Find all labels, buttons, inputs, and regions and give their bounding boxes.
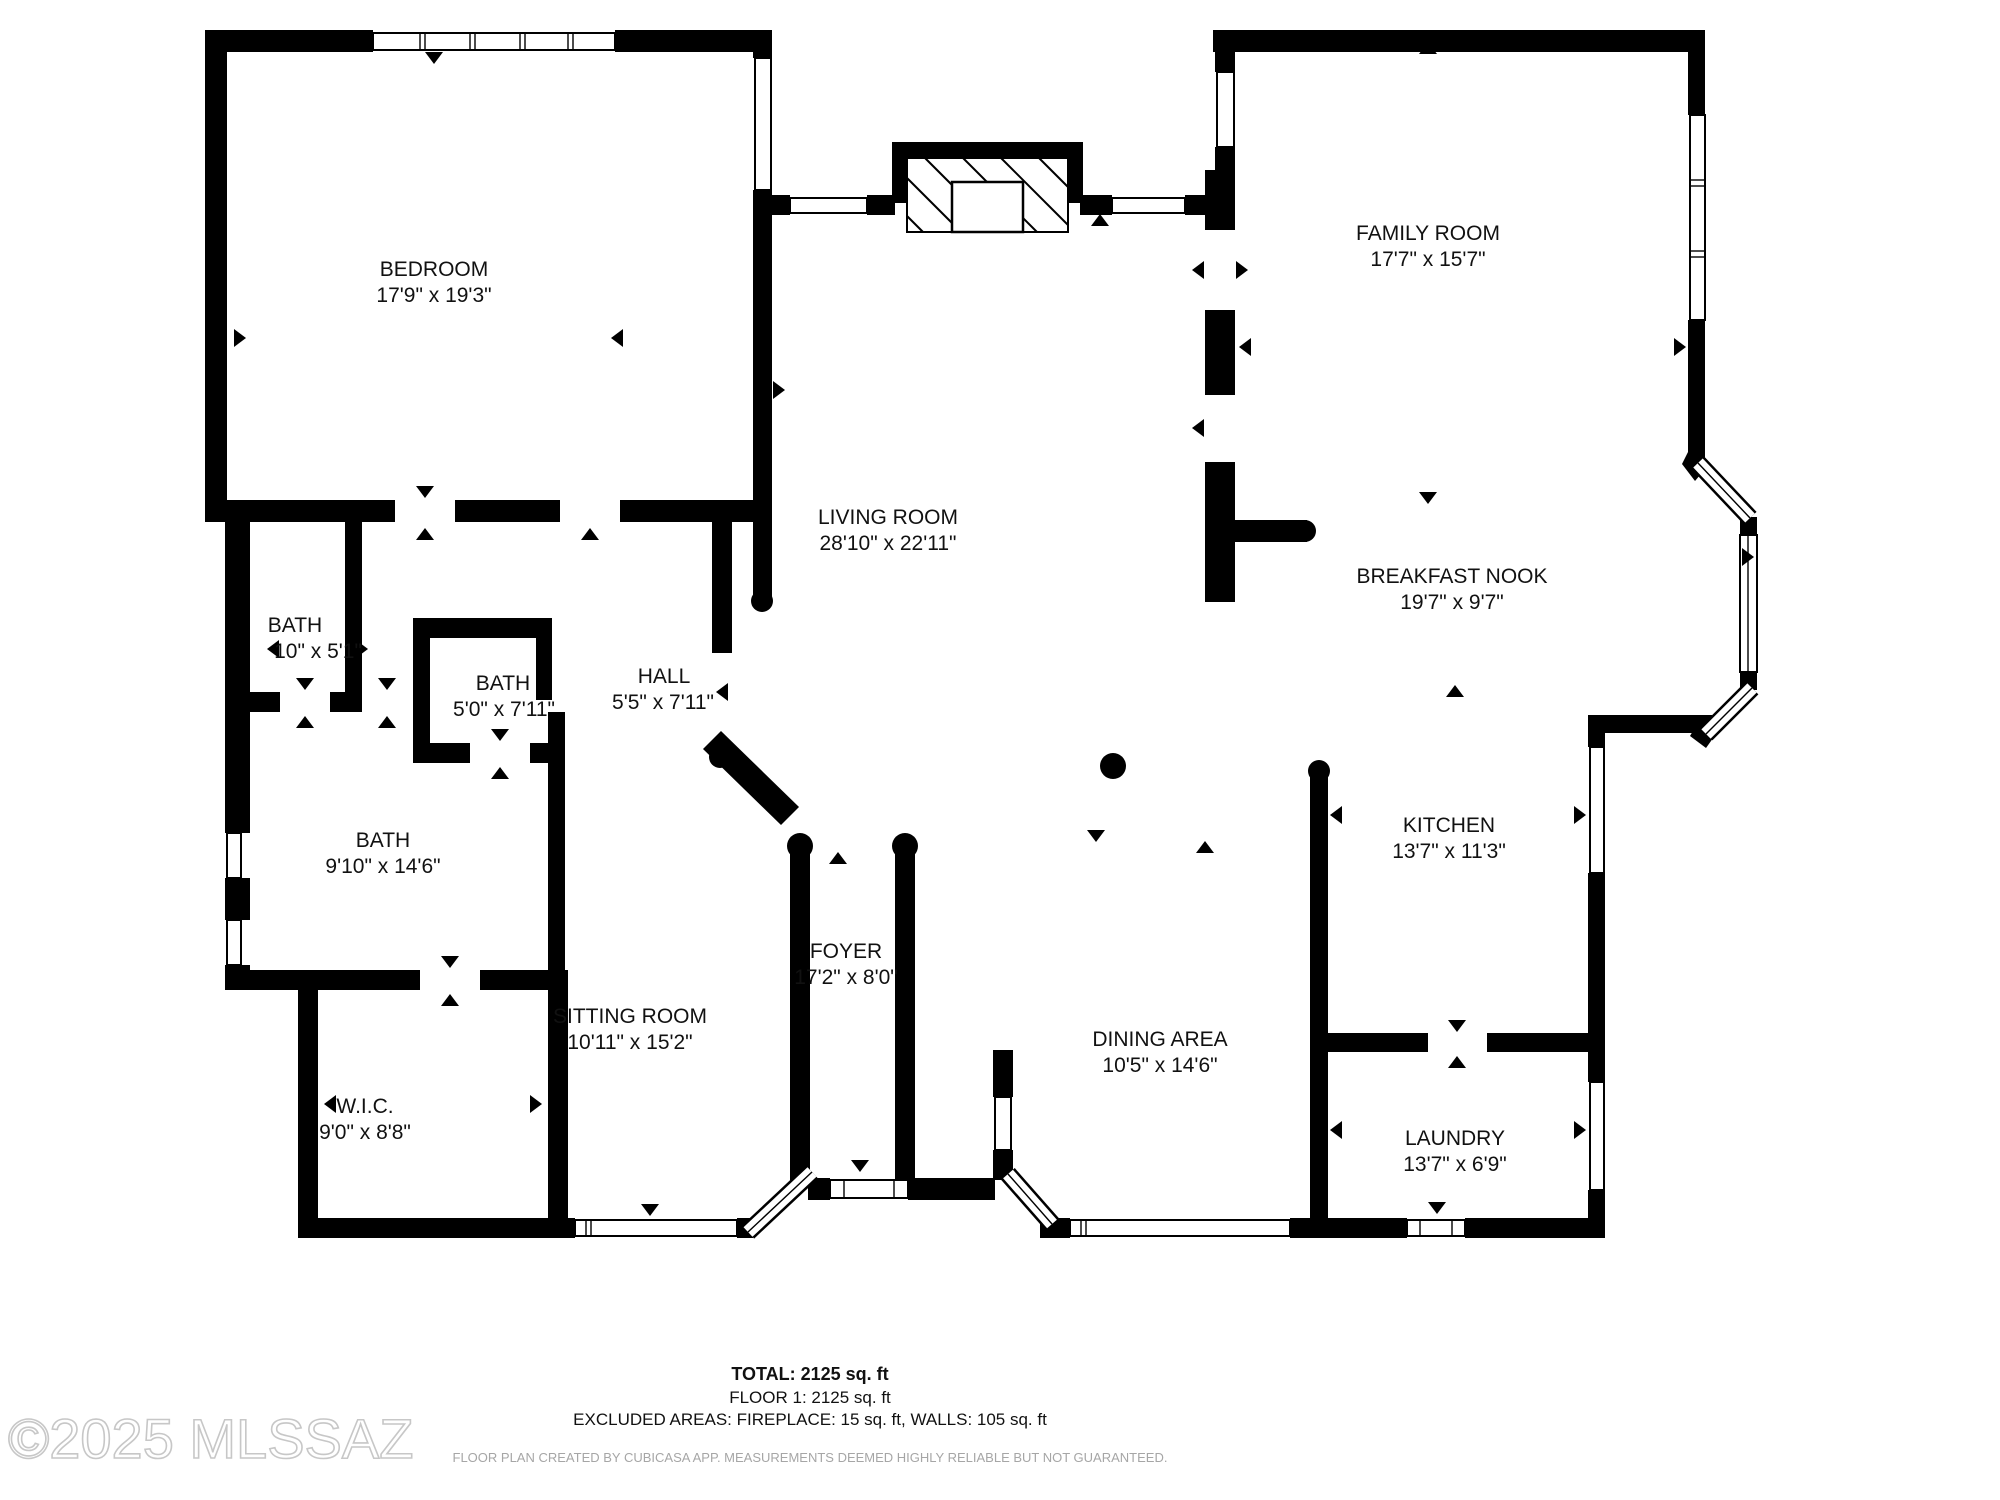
footer: TOTAL: 2125 sq. ft FLOOR 1: 2125 sq. ft …	[453, 1364, 1168, 1465]
column	[1100, 753, 1126, 779]
wall-segment	[548, 1218, 575, 1238]
wall-segment	[1588, 715, 1605, 747]
wall-segment	[1205, 310, 1235, 395]
room-label-bedroom: BEDROOM	[380, 258, 489, 281]
door-marker-icon	[425, 52, 443, 64]
window-living-left	[790, 198, 867, 213]
window-bedroom-top	[373, 33, 615, 50]
wall-segment	[753, 30, 772, 58]
door-marker-icon	[1574, 806, 1586, 824]
wall-segment	[1487, 1033, 1588, 1052]
door-marker-icon	[378, 678, 396, 690]
window-dining-angled	[1008, 1174, 1052, 1224]
window-bath-left-2	[227, 920, 241, 965]
firebox	[952, 182, 1023, 232]
door-marker-icon	[1330, 806, 1342, 824]
wall-segment	[225, 500, 250, 833]
window-sitting-bottom	[575, 1220, 737, 1236]
footer-disclaimer: FLOOR PLAN CREATED BY CUBICASA APP. MEAS…	[453, 1450, 1168, 1465]
wall-end-cap	[1308, 760, 1330, 782]
door-marker-icon	[1419, 492, 1437, 504]
door-marker-icon	[1448, 1056, 1466, 1068]
floor-plan: BEDROOM 17'9" x 19'3" LIVING ROOM 28'10"…	[0, 0, 2000, 1500]
window-kitchen	[1590, 747, 1604, 873]
door-marker-icon	[491, 729, 509, 741]
columns	[709, 520, 1330, 859]
door-marker-icon	[1192, 419, 1204, 437]
wall-segment	[298, 1218, 568, 1238]
wall-segment	[225, 970, 420, 990]
door-laundry-back	[1407, 1220, 1465, 1236]
door-marker-icon	[716, 683, 728, 701]
wall-segment	[1290, 1218, 1310, 1238]
wall-segment	[993, 1050, 1013, 1097]
door-marker-icon	[416, 486, 434, 498]
wall-segment	[1215, 52, 1235, 72]
wall-end-cap	[709, 746, 731, 768]
wall-segment	[712, 522, 732, 653]
room-label-laundry: LAUNDRY	[1405, 1127, 1505, 1150]
column	[892, 833, 918, 859]
room-label-bath-main: BATH	[356, 829, 410, 852]
wall-segment	[1328, 1033, 1428, 1052]
wall-segment	[867, 195, 895, 215]
footer-total: TOTAL: 2125 sq. ft	[731, 1364, 888, 1384]
door-marker-icon	[1446, 685, 1464, 697]
wall-segment	[753, 215, 772, 600]
wall-segment	[1588, 873, 1605, 1082]
wall-segment	[895, 845, 915, 1180]
window-family-right	[1690, 115, 1705, 320]
wall-segment	[413, 618, 552, 638]
door-marker-icon	[296, 678, 314, 690]
door-marker-icon	[441, 994, 459, 1006]
wall-segment	[455, 500, 560, 522]
door-marker-icon	[773, 381, 785, 399]
room-label-living-room: LIVING ROOM	[818, 506, 958, 529]
room-dims-bath-small: 10" x 5'1"	[274, 640, 362, 663]
wall-segment	[1205, 462, 1235, 602]
door-marker-icon	[1236, 261, 1248, 279]
door-marker-icon	[1674, 338, 1686, 356]
wall-segment	[536, 618, 552, 700]
wall-end-cap	[1294, 520, 1316, 542]
fireplace-frame-top	[892, 142, 1083, 158]
door-marker-icon	[611, 329, 623, 347]
wall-segment	[615, 30, 772, 52]
door-marker-icon	[416, 528, 434, 540]
wall-segment	[1205, 170, 1235, 230]
door-marker-icon	[324, 1095, 336, 1113]
room-dims-wic: 9'0" x 8'8"	[319, 1121, 411, 1144]
wall-segment	[413, 638, 430, 763]
wall-segment	[1588, 1190, 1605, 1238]
room-label-breakfast-nook: BREAKFAST NOOK	[1357, 565, 1548, 588]
room-label-foyer: FOYER	[810, 940, 882, 963]
room-dims-bath-middle: 5'0" x 7'11"	[453, 698, 555, 721]
room-label-bath-middle: BATH	[476, 672, 530, 695]
door-marker-icon	[1239, 338, 1251, 356]
door-marker-icon	[1428, 1202, 1446, 1214]
door-marker-icon	[491, 767, 509, 779]
column	[787, 833, 813, 859]
room-label-dining-area: DINING AREA	[1092, 1028, 1227, 1051]
wall-segment	[225, 965, 250, 990]
footer-excluded: EXCLUDED AREAS: FIREPLACE: 15 sq. ft, WA…	[573, 1410, 1047, 1429]
room-label-family-room: FAMILY ROOM	[1356, 222, 1500, 245]
room-label-sitting-room: SITTING ROOM	[553, 1005, 707, 1028]
window-dining-side	[995, 1097, 1011, 1150]
room-dims-hall: 5'5" x 7'11"	[612, 691, 714, 714]
fireplace-frame-left	[892, 142, 907, 203]
door-marker-icon	[441, 956, 459, 968]
door-marker-icon	[1196, 841, 1214, 853]
window-family-step	[1217, 72, 1234, 147]
wall-segment	[753, 190, 772, 215]
window-bay-lower-angled	[1706, 688, 1752, 734]
room-label-bath-small: BATH	[268, 614, 322, 637]
wall-segment	[790, 845, 810, 1180]
door-marker-icon	[829, 852, 847, 864]
room-dims-breakfast-nook: 19'7" x 9'7"	[1400, 591, 1504, 614]
fireplace-frame-right	[1068, 142, 1083, 203]
wall-segment	[1688, 320, 1705, 470]
room-label-kitchen: KITCHEN	[1403, 814, 1495, 837]
room-dims-family-room: 17'7" x 15'7"	[1370, 248, 1485, 271]
window-bedroom-step	[755, 58, 771, 190]
window-bath-left-1	[227, 833, 241, 878]
room-dims-dining-area: 10'5" x 14'6"	[1102, 1054, 1217, 1077]
door-marker-icon	[851, 1160, 869, 1172]
door-marker-icon	[296, 716, 314, 728]
door-marker-icon	[1087, 830, 1105, 842]
wall-segment	[1213, 30, 1705, 52]
room-dims-kitchen: 13'7" x 11'3"	[1392, 840, 1506, 863]
door-marker-icon	[641, 1204, 659, 1216]
door-marker-icon	[1330, 1121, 1342, 1139]
wall-segment	[205, 30, 227, 522]
wall-angled	[703, 731, 799, 825]
wall-segment	[620, 500, 772, 522]
wall-segment	[548, 712, 565, 970]
wall-segment	[1688, 30, 1705, 115]
window-living-right	[1112, 198, 1185, 213]
room-dims-bath-main: 9'10" x 14'6"	[325, 855, 440, 878]
wall-segment	[345, 522, 362, 712]
front-door	[830, 1180, 908, 1198]
door-marker-icon	[1192, 261, 1204, 279]
wall-segment	[1310, 1035, 1328, 1238]
footer-floor: FLOOR 1: 2125 sq. ft	[729, 1388, 891, 1407]
wall-segment	[298, 970, 318, 1238]
wall-segment	[1310, 770, 1328, 1052]
wall-segment	[1080, 195, 1112, 215]
window-laundry-side	[1590, 1082, 1604, 1190]
room-dims-sitting-room: 10'11" x 15'2"	[567, 1031, 692, 1054]
door-marker-icon	[1448, 1020, 1466, 1032]
door-marker-icon	[1091, 214, 1109, 226]
window-sitting-angled	[748, 1172, 812, 1232]
room-dims-bedroom: 17'9" x 19'3"	[376, 284, 491, 307]
wall-segment	[1465, 1218, 1605, 1238]
room-dims-foyer: 17'2" x 8'0"	[794, 966, 898, 989]
door-marker-icon	[378, 716, 396, 728]
window-dining-bottom	[1070, 1220, 1290, 1236]
fireplace	[892, 142, 1083, 232]
watermark: ©2025 MLSSAZ	[8, 1407, 413, 1470]
wall-segment	[225, 878, 250, 920]
door-marker-icon	[581, 528, 599, 540]
wall-end-cap	[751, 590, 773, 612]
door-marker-icon	[530, 1095, 542, 1113]
room-dims-laundry: 13'7" x 6'9"	[1403, 1153, 1507, 1176]
wall-segment	[908, 1178, 995, 1200]
wall-segment	[205, 30, 373, 52]
room-dims-living-room: 28'10" x 22'11"	[820, 532, 957, 555]
door-marker-icon	[234, 329, 246, 347]
floor-plan-page: BEDROOM 17'9" x 19'3" LIVING ROOM 28'10"…	[0, 0, 2000, 1500]
window-bay-upper-angled	[1698, 463, 1750, 518]
room-label-wic: W.I.C.	[336, 1095, 393, 1118]
door-marker-icon	[1574, 1121, 1586, 1139]
room-label-hall: HALL	[638, 665, 691, 688]
